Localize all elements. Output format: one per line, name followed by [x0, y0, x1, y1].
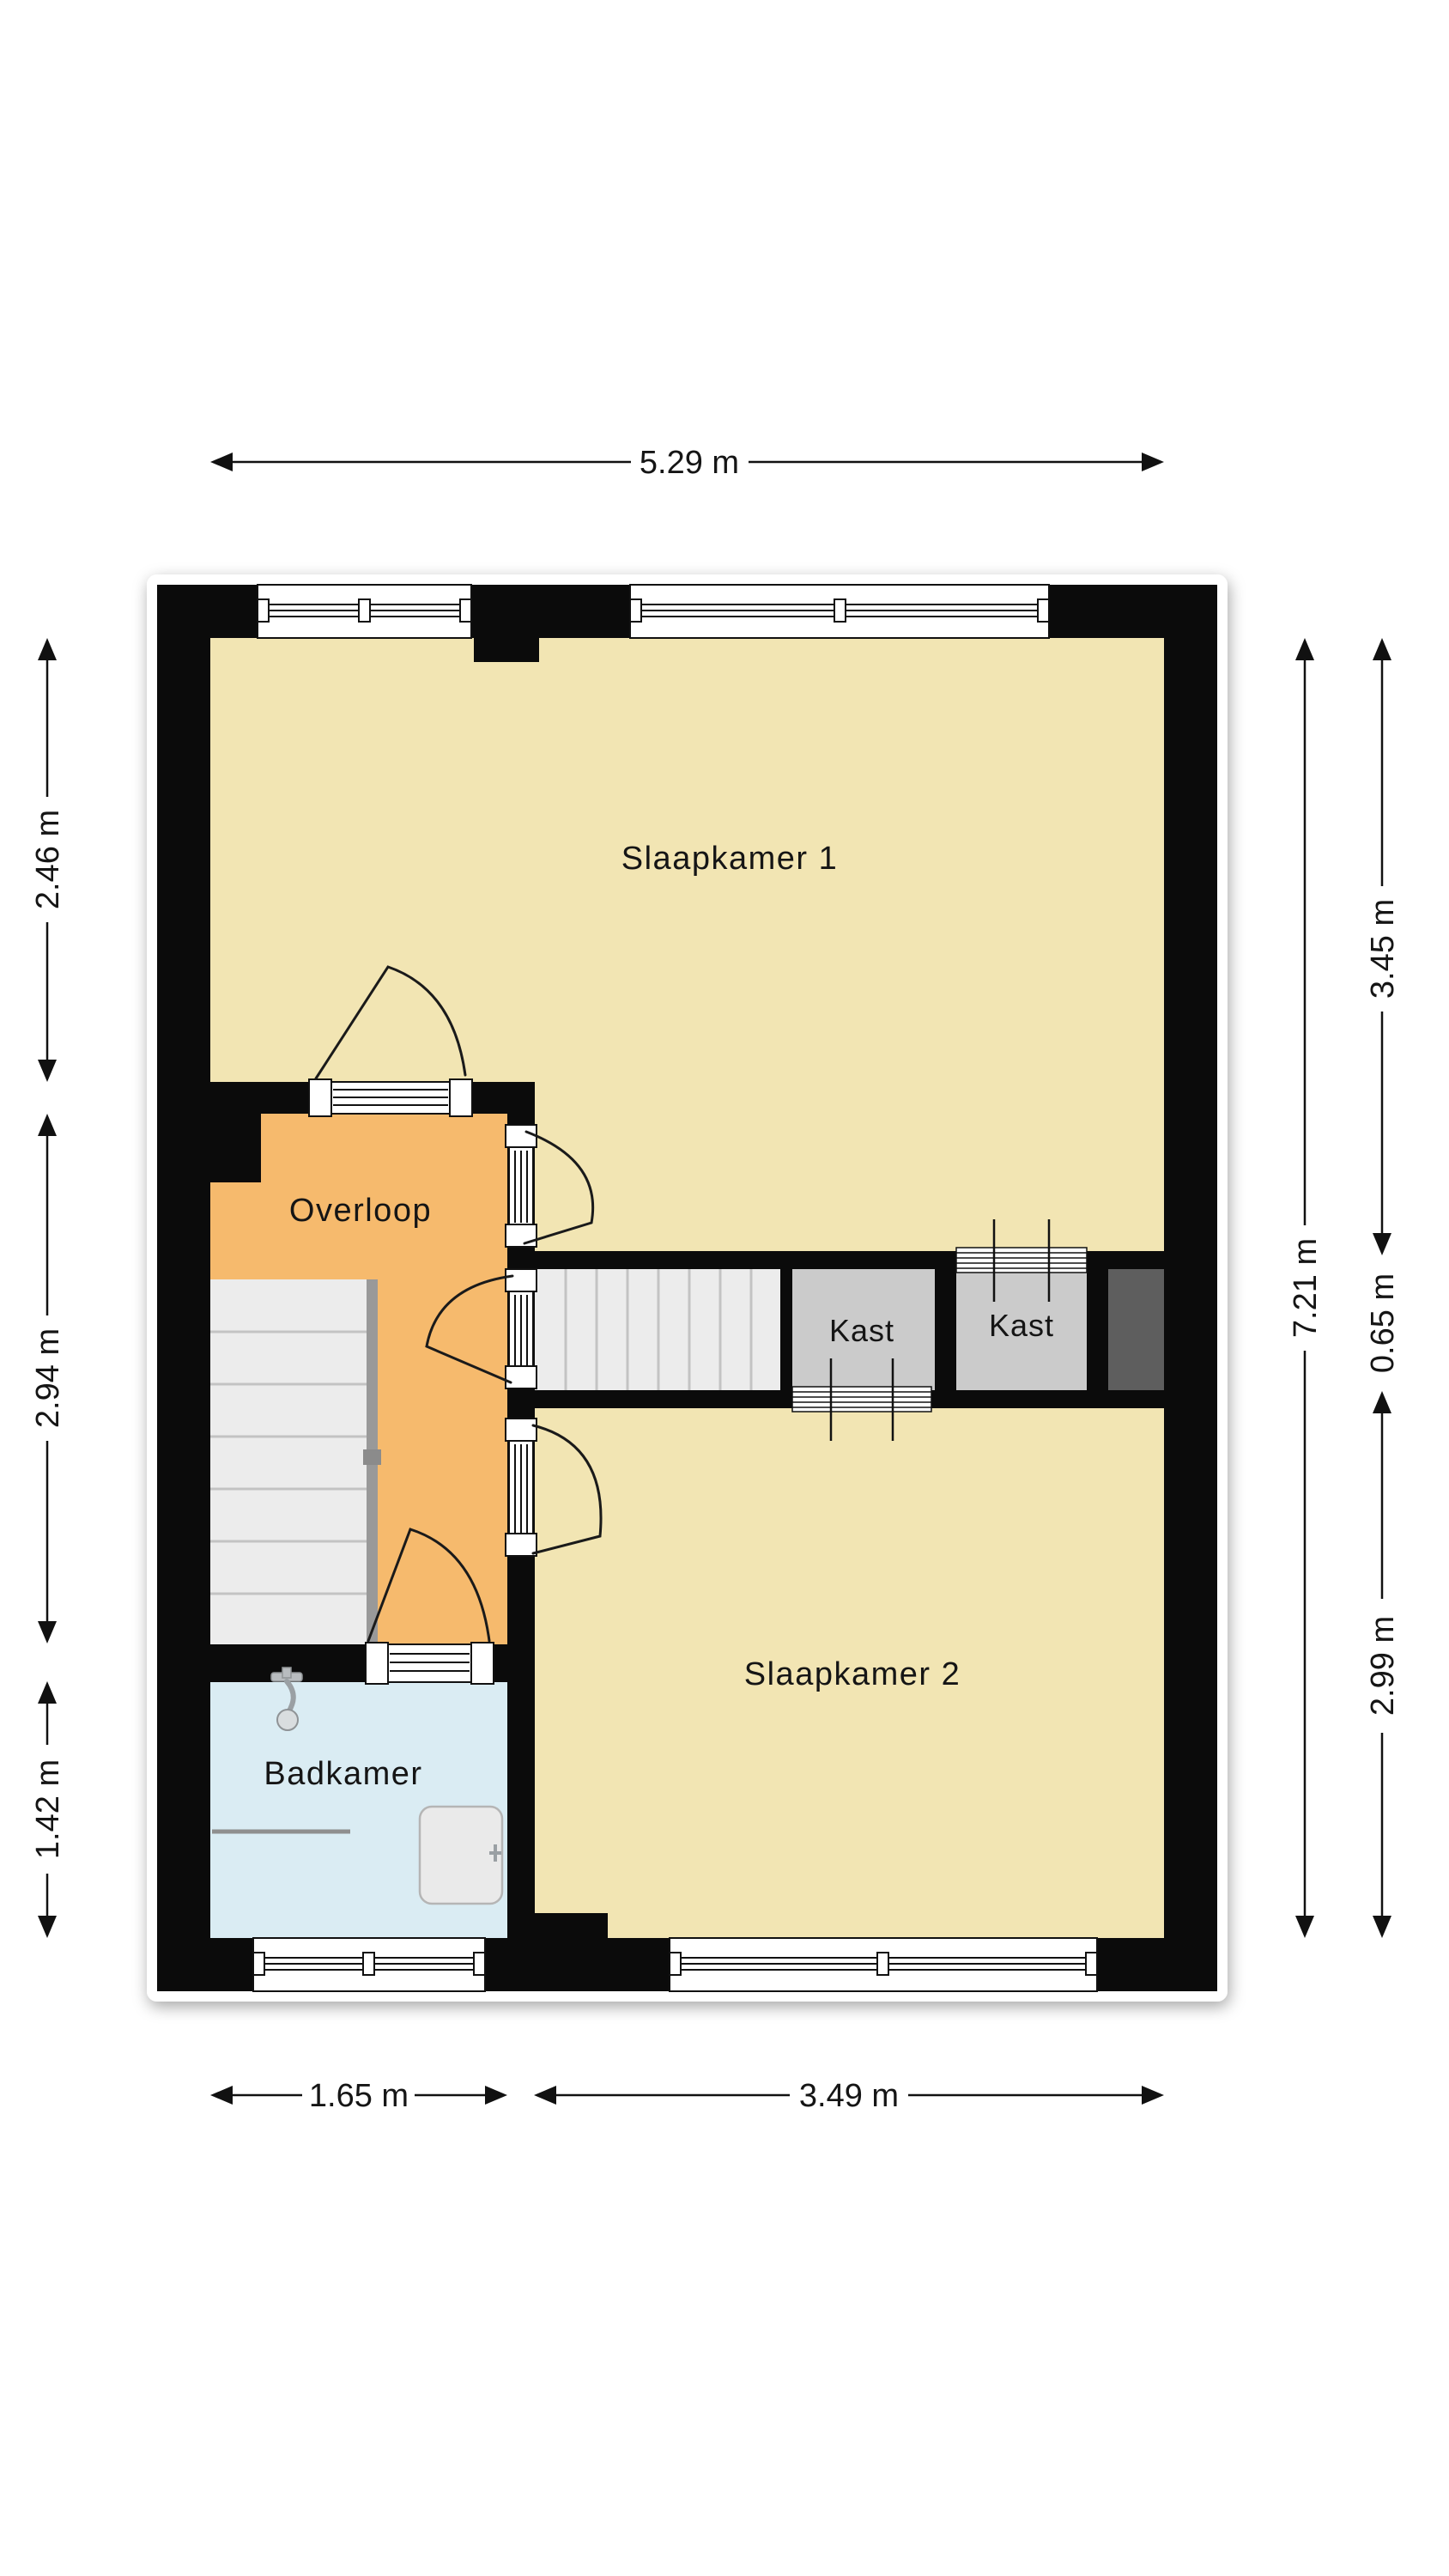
dimension-bottom-left: 1.65 m: [210, 2078, 507, 2114]
dim-bottom-right: 3.49 m: [799, 2078, 899, 2114]
dimension-right-bottom: 2.99 m: [1365, 1391, 1401, 1938]
dim-left-bottom: 1.42 m: [30, 1759, 66, 1859]
dimension-left-middle: 2.94 m: [30, 1114, 66, 1643]
wall-stub-bottom: [532, 1913, 608, 1938]
dim-left-top: 2.46 m: [30, 810, 66, 909]
label-kast-1: Kast: [829, 1313, 894, 1348]
window-bottom-left: [253, 1938, 485, 1991]
window-bottom-right: [670, 1938, 1097, 1991]
label-slaapkamer-2: Slaapkamer 2: [744, 1656, 961, 1692]
stair-handrail-knob: [363, 1449, 381, 1465]
shaft: [1108, 1269, 1164, 1390]
wall-right: [1164, 585, 1217, 1991]
dimension-left-bottom: 1.42 m: [30, 1681, 66, 1938]
dim-right-top: 3.45 m: [1365, 899, 1401, 999]
wall-kast-divider-2: [1087, 1251, 1108, 1408]
dimension-right-total-height: 7.21 m: [1288, 638, 1324, 1938]
dim-right-middle: 0.65 m: [1365, 1273, 1401, 1373]
staircase-main-flight: [210, 1279, 381, 1644]
shower-tray: [420, 1807, 502, 1904]
window-top-left: [258, 585, 471, 638]
label-badkamer: Badkamer: [264, 1756, 422, 1792]
wall-kast-divider-1: [935, 1251, 956, 1408]
dimension-right-top: 3.45 m: [1365, 638, 1401, 1255]
floorplan-canvas: Slaapkamer 1 Overloop Kast Kast Slaapkam…: [0, 0, 1449, 2576]
wall-stub-top: [474, 638, 539, 662]
dimension-bottom-right: 3.49 m: [534, 2078, 1164, 2114]
staircase-upper-flight: [535, 1269, 780, 1390]
dim-bottom-left: 1.65 m: [309, 2078, 409, 2114]
dim-left-middle: 2.94 m: [30, 1328, 66, 1428]
label-overloop: Overloop: [289, 1193, 432, 1229]
dimension-top-width: 5.29 m: [210, 445, 1164, 481]
wall-column-overloop: [210, 1114, 261, 1182]
floorplan-page: Slaapkamer 1 Overloop Kast Kast Slaapkam…: [0, 0, 1449, 2576]
wall-left: [157, 585, 210, 1991]
dimension-right-middle: 0.65 m: [1365, 1273, 1401, 1373]
wall-stairs-kast-divider: [780, 1269, 792, 1390]
dimension-left-top: 2.46 m: [30, 638, 66, 1082]
label-kast-2: Kast: [989, 1308, 1054, 1343]
dim-right-bottom: 2.99 m: [1365, 1616, 1401, 1716]
dim-total-height: 7.21 m: [1288, 1238, 1324, 1338]
dim-total-width: 5.29 m: [640, 445, 739, 481]
window-top-right: [630, 585, 1049, 638]
label-slaapkamer-1: Slaapkamer 1: [621, 841, 838, 877]
